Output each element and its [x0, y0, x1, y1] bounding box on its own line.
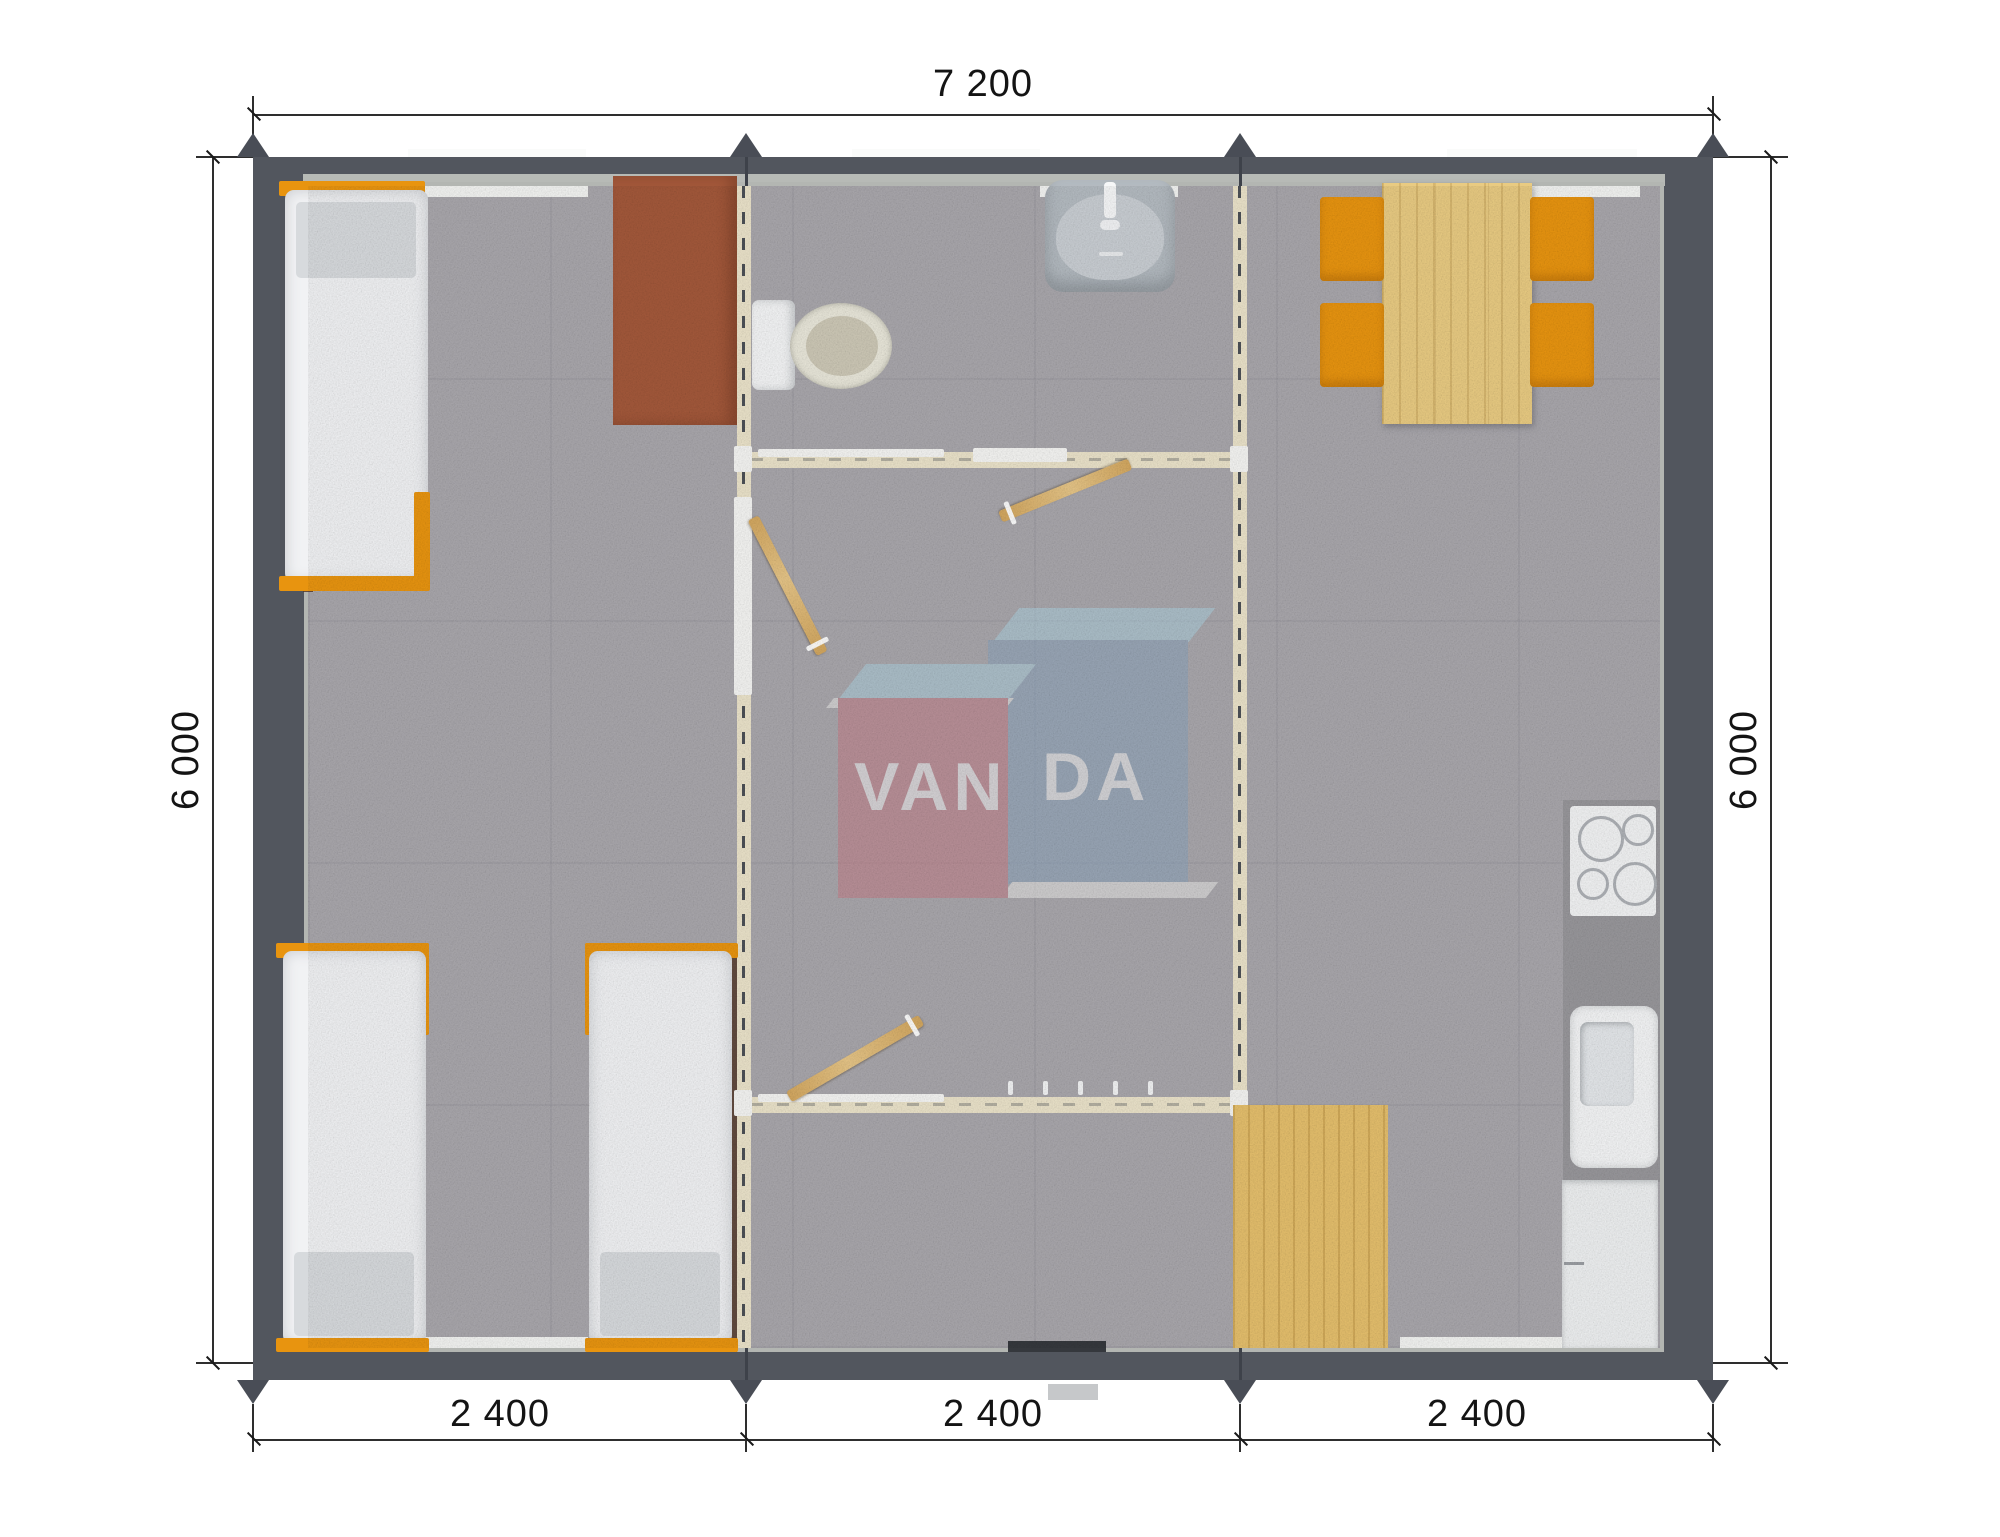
watermark-text-da: DA [1042, 738, 1150, 816]
floor-mat-icon [1233, 1105, 1388, 1348]
module-joint-marker [1697, 133, 1729, 157]
coat-hooks-icon [1113, 1081, 1118, 1095]
module-joint-marker [1224, 133, 1256, 157]
toilet-seat [806, 316, 878, 376]
dining-table-icon [1382, 183, 1532, 424]
dim-witness [1712, 1404, 1714, 1452]
chair-icon [1530, 197, 1594, 281]
coat-hooks-icon [1008, 1081, 1013, 1095]
dim-witness [745, 1404, 747, 1452]
dim-witness [1713, 1362, 1788, 1364]
kitchen-sink-basin [1580, 1022, 1634, 1106]
floor-plan-canvas: 7 200 2 400 2 400 2 400 6 000 6 000 [0, 0, 2000, 1537]
pillow [294, 1252, 414, 1336]
dim-line-top [253, 114, 1713, 116]
vanda-watermark: VAN DA [830, 606, 1202, 906]
drain-icon [1099, 252, 1123, 256]
window-icon [1447, 149, 1637, 157]
dim-label-top: 7 200 [883, 64, 1083, 104]
module-seam [745, 157, 748, 186]
module-seam [1239, 1348, 1242, 1380]
door-opening-frame [734, 497, 752, 695]
burner-icon [1613, 862, 1657, 906]
module-joint-marker [237, 1380, 269, 1404]
entrance-step [1048, 1384, 1098, 1400]
pillow [296, 202, 416, 278]
burner-icon [1578, 816, 1624, 862]
module-joint-marker [730, 1380, 762, 1404]
dim-witness [196, 1362, 253, 1364]
wall-junction [1230, 446, 1248, 472]
entrance-threshold [1008, 1341, 1106, 1352]
watermark-box-top [993, 608, 1216, 642]
bed-frame [585, 1338, 738, 1352]
window-icon [408, 149, 586, 157]
coat-hooks-icon [1043, 1081, 1048, 1095]
burner-icon [1577, 868, 1609, 900]
coat-hooks-icon [1148, 1081, 1153, 1095]
dim-label-bottom-1: 2 400 [400, 1394, 600, 1434]
wall-junction [734, 446, 752, 472]
pillow [600, 1252, 720, 1336]
dim-line-left [212, 157, 214, 1363]
door-opening-frame [758, 449, 944, 457]
module-joint-marker [730, 133, 762, 157]
dim-line-right [1770, 157, 1772, 1363]
watermark-edge [1000, 882, 1219, 898]
dim-label-bottom-3: 2 400 [1377, 1394, 1577, 1434]
dim-label-bottom-2: 2 400 [893, 1394, 1093, 1434]
window-icon [852, 149, 1040, 157]
bed-frame [279, 576, 430, 591]
chair-icon [1320, 197, 1384, 281]
burner-icon [1622, 814, 1654, 846]
module-seam [745, 1348, 748, 1380]
door-opening-frame [758, 1094, 944, 1102]
desk-icon [613, 176, 737, 425]
faucet-icon [1100, 220, 1120, 230]
window-sill [400, 186, 588, 197]
door-opening-frame [973, 448, 1067, 462]
watermark-text-van: VAN [854, 748, 1008, 826]
module-joint-marker [1697, 1380, 1729, 1404]
module-joint-marker [1224, 1380, 1256, 1404]
module-joint-marker [237, 133, 269, 157]
watermark-box-top [838, 664, 1036, 700]
dim-witness [252, 1404, 254, 1452]
coat-hooks-icon [1078, 1081, 1083, 1095]
faucet-icon [1104, 182, 1116, 218]
dim-label-left: 6 000 [166, 680, 206, 840]
chair-icon [1320, 303, 1384, 387]
bed-frame [276, 1338, 429, 1352]
dim-witness [1239, 1404, 1241, 1452]
toilet-icon [752, 300, 795, 390]
wall-junction [734, 1090, 752, 1116]
partition-wall-left [737, 186, 751, 1348]
module-seam [1239, 157, 1242, 186]
dim-line-bottom [253, 1439, 1713, 1441]
dim-label-right: 6 000 [1724, 680, 1764, 840]
chair-icon [1530, 303, 1594, 387]
cabinet-handle [1564, 1262, 1584, 1265]
